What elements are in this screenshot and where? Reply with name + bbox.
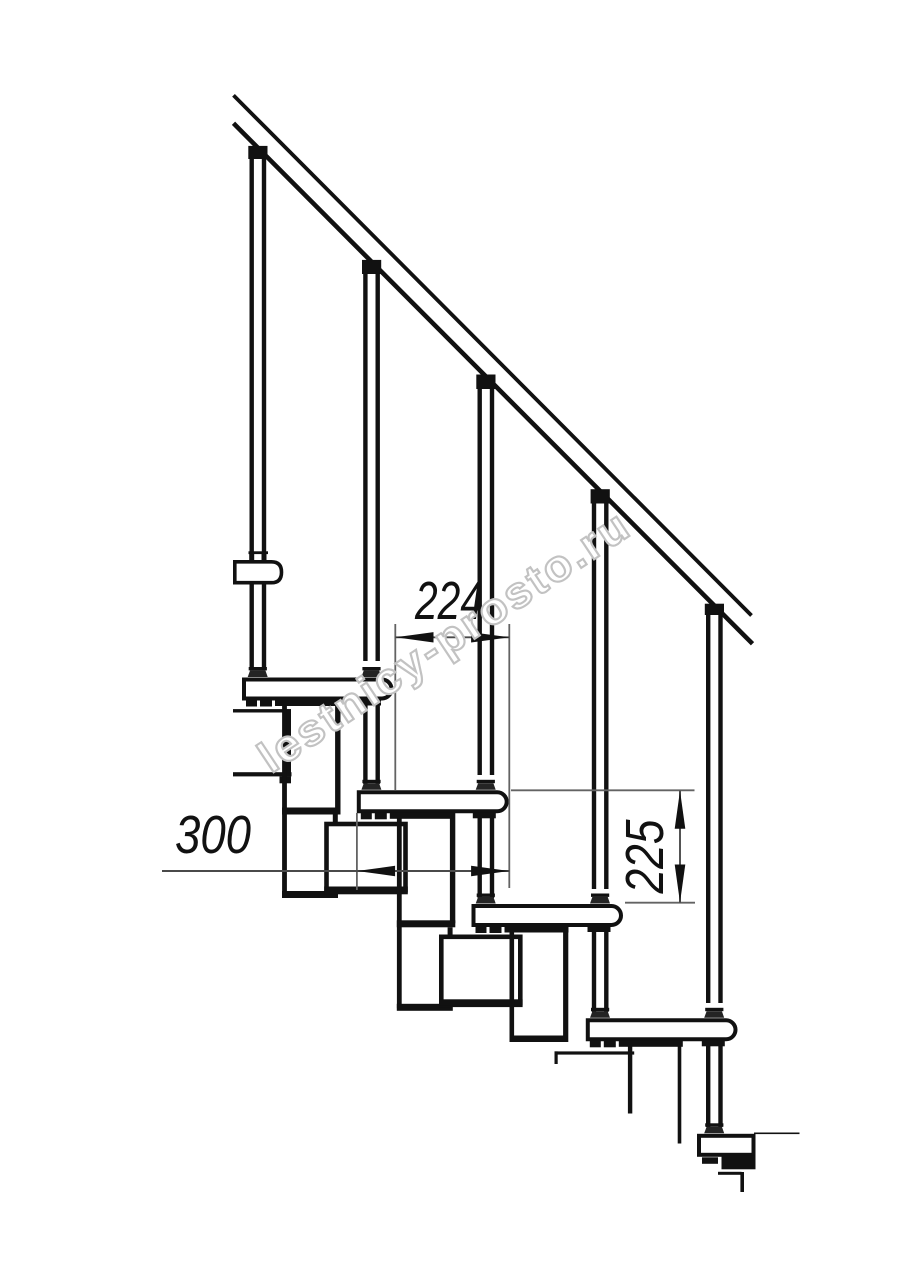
svg-text:225: 225 (615, 819, 675, 895)
svg-text:300: 300 (175, 805, 251, 865)
